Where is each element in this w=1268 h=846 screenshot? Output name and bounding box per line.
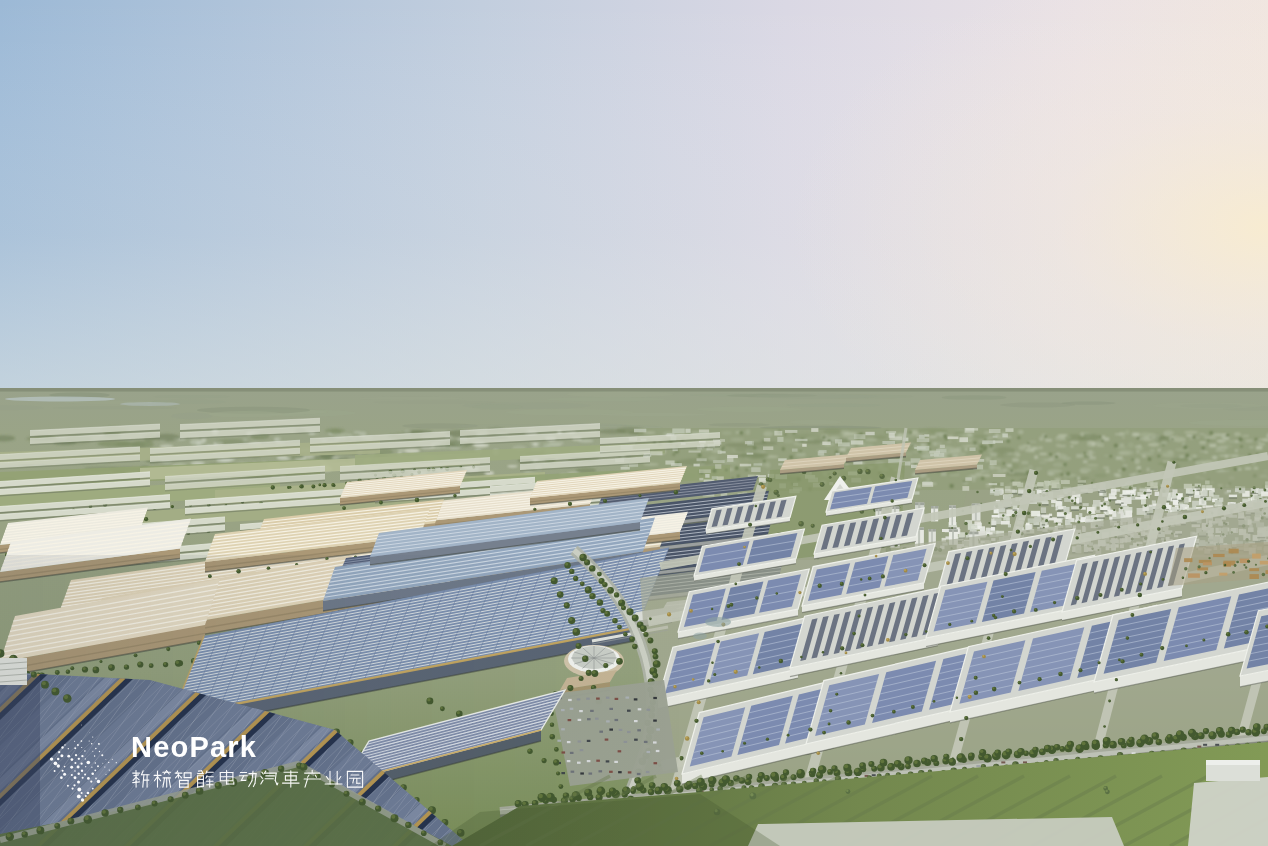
svg-text:NeoPark: NeoPark bbox=[131, 731, 257, 763]
